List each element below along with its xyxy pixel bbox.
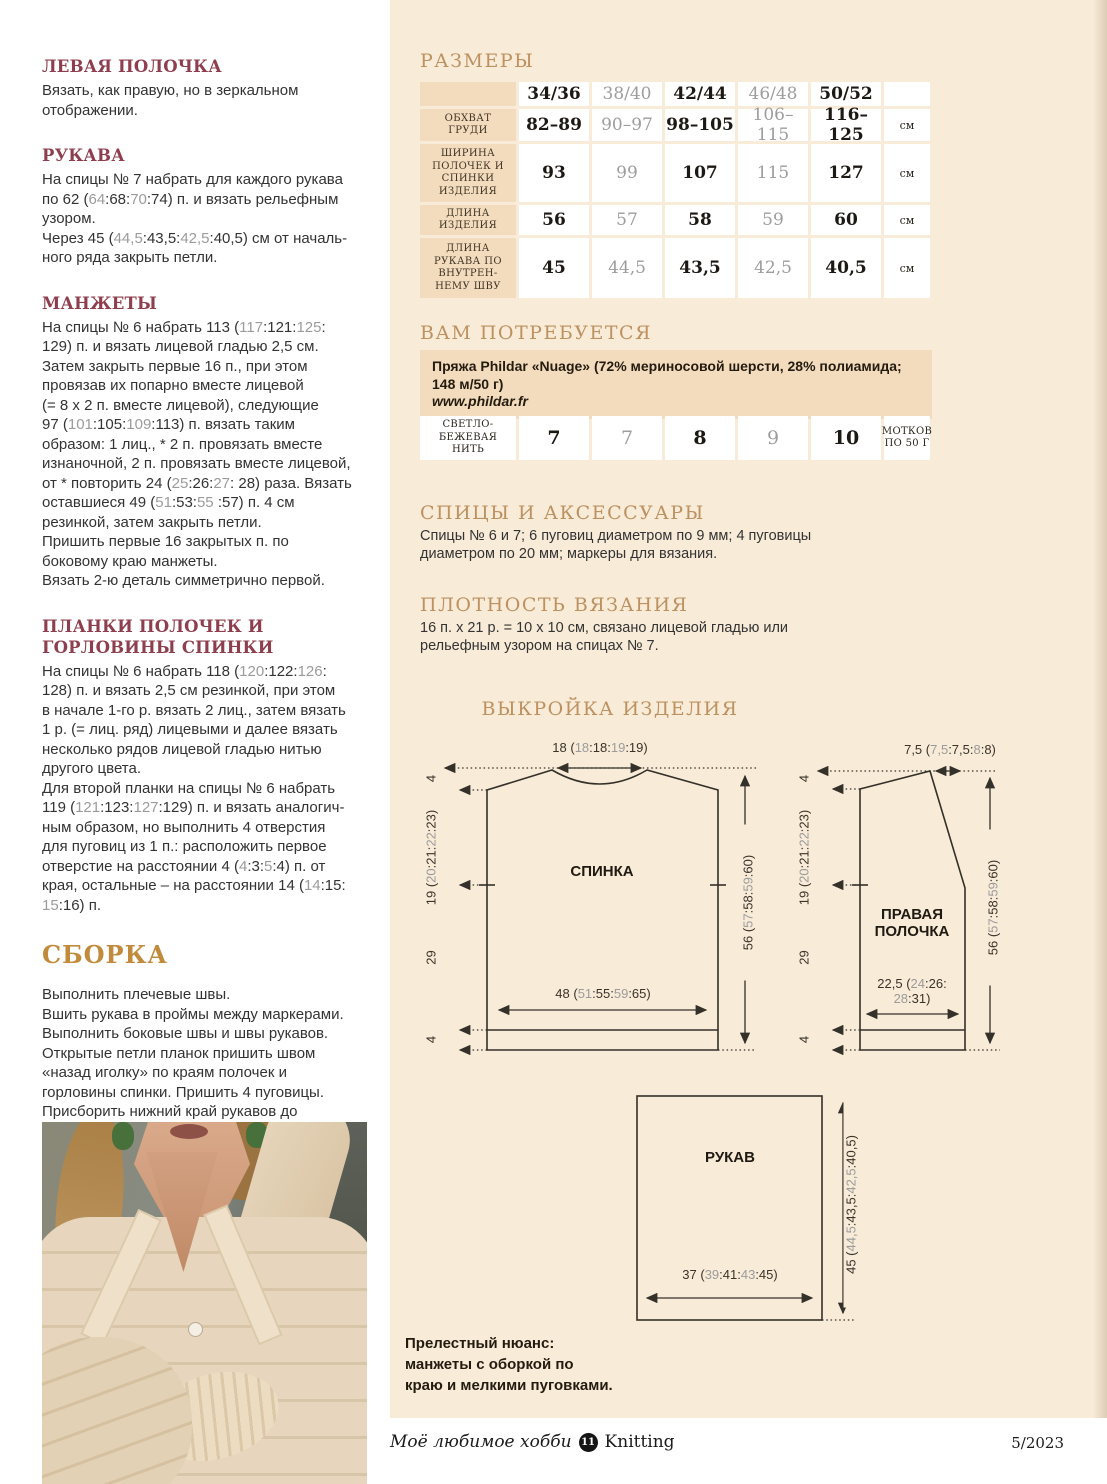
sizes-table: 34/36 38/40 42/44 46/48 50/52 ОБХВАТ ГРУ… (420, 82, 930, 298)
section-paragraph: На спицы № 6 набрать 113 (117:121:125: 1… (42, 318, 370, 591)
dimension-label-right: 56 (57:58:59:60) (741, 825, 756, 981)
dimension-label-top: 7,5 (7,5:7,5:8:8) (850, 742, 1050, 757)
unit-cell: см (884, 205, 930, 235)
row-label: ДЛИНА ИЗДЕЛИЯ (420, 205, 516, 235)
yarn-info-box: Пряжа Phildar «Nuage» (72% мериносовой ш… (420, 350, 932, 419)
footer-brand-serif: Knitting (605, 1432, 675, 1452)
dimension-label-left: 19 (20:21:22:23) (424, 783, 439, 933)
sleeve-diagram: РУКАВ 37 (39:41:43:45) 45 (44,5:43,5:42,… (600, 1085, 900, 1335)
footer-brand-italic: Моё любимое хобби (390, 1432, 572, 1452)
table-cell: 56 (519, 205, 589, 235)
table-cell: 10 (811, 416, 881, 460)
model-photo (42, 1122, 367, 1484)
footer-issue-badge: 11 (579, 1433, 598, 1452)
piece-name: ПРАВАЯ ПОЛОЧКА (842, 906, 982, 940)
back-piece-diagram: СПИНКА 18 (18:18:19:19) 48 (51:55:59:65)… (420, 738, 770, 1068)
dimension-label-left: 29 (797, 938, 812, 978)
section-paragraph: Вязать, как правую, но в зеркальном отоб… (42, 81, 370, 120)
row-label: ДЛИНА РУКАВА ПО ВНУТРЕН- НЕМУ ШВУ (420, 238, 516, 298)
section-bands: ПЛАНКИ ПОЛОЧЕК И ГОРЛОВИНЫ СПИНКИ На спи… (42, 616, 370, 916)
section-title: РУКАВА (42, 145, 370, 166)
unit-cell: МОТКОВ ПО 50 Г (884, 416, 930, 460)
size-col-header: 34/36 (519, 82, 589, 106)
unit-cell: см (884, 238, 930, 298)
dimension-label-left: 4 (424, 1020, 439, 1060)
table-cell: 99 (592, 144, 662, 202)
table-cell: 43,5 (665, 238, 735, 298)
table-cell: 8 (665, 416, 735, 460)
dimension-label-right: 45 (44,5:43,5:42,5:40,5) (844, 1102, 859, 1308)
footer-brand: Моё любимое хобби 11 Knitting (390, 1432, 675, 1452)
section-left-front: ЛЕВАЯ ПОЛОЧКА Вязать, как правую, но в з… (42, 56, 370, 120)
dimension-label-top: 18 (18:18:19:19) (495, 740, 705, 755)
section-title: МАНЖЕТЫ (42, 293, 370, 314)
section-paragraph: Через 45 (44,5:43,5:42,5:40,5) см от нач… (42, 229, 370, 268)
magazine-page: ЛЕВАЯ ПОЛОЧКА Вязать, как правую, но в з… (0, 0, 1107, 1484)
footer-issue-number: 5/2023 (1002, 1434, 1064, 1452)
style-note: Прелестный нюанс: манжеты с оборкой по к… (405, 1333, 613, 1396)
size-col-header: 38/40 (592, 82, 662, 106)
pattern-column: РАЗМЕРЫ 34/36 38/40 42/44 46/48 50/52 ОБ… (390, 0, 1107, 1418)
unit-cell: см (884, 109, 930, 141)
dimension-label-bottom: 48 (51:55:59:65) (497, 986, 709, 1001)
row-label: ШИРИНА ПОЛОЧЕК И СПИНКИ ИЗДЕЛИЯ (420, 144, 516, 202)
size-col-header: 46/48 (738, 82, 808, 106)
table-corner-cell (420, 82, 516, 106)
table-cell: 93 (519, 144, 589, 202)
unit-cell: см (884, 144, 930, 202)
table-cell: 45 (519, 238, 589, 298)
materials-heading: ВАМ ПОТРЕБУЕТСЯ (420, 322, 652, 344)
table-cell: 115 (738, 144, 808, 202)
table-cell: 7 (519, 416, 589, 460)
photo-earring-left (112, 1122, 134, 1150)
dimension-label-right: 56 (57:58:59:60) (986, 830, 1001, 986)
section-sleeves: РУКАВА На спицы № 7 набрать для каждого … (42, 145, 370, 268)
table-cell: 90–97 (592, 109, 662, 141)
instructions-column: ЛЕВАЯ ПОЛОЧКА Вязать, как правую, но в з… (42, 56, 370, 1244)
piece-name: СПИНКА (538, 863, 666, 880)
table-cell: 7 (592, 416, 662, 460)
dimension-label-bottom: 37 (39:41:43:45) (645, 1267, 815, 1282)
photo-lips (170, 1124, 208, 1139)
table-cell: 106–115 (738, 109, 808, 141)
table-cell: 98–105 (665, 109, 735, 141)
section-title: ПЛАНКИ ПОЛОЧЕК И ГОРЛОВИНЫ СПИНКИ (42, 616, 342, 658)
gauge-text: 16 п. х 21 р. = 10 х 10 см, связано лице… (420, 620, 788, 655)
table-cell: 116–125 (811, 109, 881, 141)
right-front-outline (790, 738, 1107, 1068)
row-label: ОБХВАТ ГРУДИ (420, 109, 516, 141)
table-cell: 57 (592, 205, 662, 235)
table-cell: 58 (665, 205, 735, 235)
yarn-color-label: СВЕТЛО- БЕЖЕВАЯ НИТЬ (420, 416, 516, 460)
table-cell: 60 (811, 205, 881, 235)
table-corner-cell (884, 82, 930, 106)
photo-button (188, 1322, 203, 1337)
yarn-description: Пряжа Phildar «Nuage» (72% мериносовой ш… (432, 358, 920, 393)
sizes-heading: РАЗМЕРЫ (420, 50, 534, 72)
table-cell: 82–89 (519, 109, 589, 141)
size-col-header: 42/44 (665, 82, 735, 106)
table-cell: 59 (738, 205, 808, 235)
dimension-label-left: 4 (797, 1020, 812, 1060)
back-piece-outline (420, 738, 770, 1068)
dimension-label-left: 29 (424, 938, 439, 978)
section-paragraph: На спицы № 6 набрать 118 (120:122:126: 1… (42, 662, 370, 916)
size-col-header: 50/52 (811, 82, 881, 106)
assembly-title: СБОРКА (42, 940, 370, 969)
section-cuffs: МАНЖЕТЫ На спицы № 6 набрать 113 (117:12… (42, 293, 370, 591)
table-cell: 44,5 (592, 238, 662, 298)
yarn-amount-table: СВЕТЛО- БЕЖЕВАЯ НИТЬ 7 7 8 9 10 МОТКОВ П… (420, 416, 930, 460)
needles-heading: СПИЦЫ И АКСЕССУАРЫ (420, 502, 705, 524)
section-title: ЛЕВАЯ ПОЛОЧКА (42, 56, 370, 77)
gauge-heading: ПЛОТНОСТЬ ВЯЗАНИЯ (420, 594, 688, 616)
table-cell: 42,5 (738, 238, 808, 298)
dimension-label-left: 19 (20:21:22:23) (797, 783, 812, 933)
section-paragraph: На спицы № 7 набрать для каждого рукава … (42, 170, 370, 229)
needles-text: Спицы № 6 и 7; 6 пуговиц диаметром по 9 … (420, 528, 811, 563)
table-cell: 40,5 (811, 238, 881, 298)
yarn-website: www.phildar.fr (432, 393, 920, 411)
table-cell: 127 (811, 144, 881, 202)
table-cell: 107 (665, 144, 735, 202)
dimension-label-bottom: 22,5 (24:26: 28:31) (837, 976, 987, 1006)
right-front-diagram: ПРАВАЯ ПОЛОЧКА 7,5 (7,5:7,5:8:8) 22,5 (2… (790, 738, 1107, 1068)
pattern-heading: ВЫКРОЙКА ИЗДЕЛИЯ (460, 698, 760, 720)
table-cell: 9 (738, 416, 808, 460)
piece-name: РУКАВ (660, 1149, 800, 1166)
